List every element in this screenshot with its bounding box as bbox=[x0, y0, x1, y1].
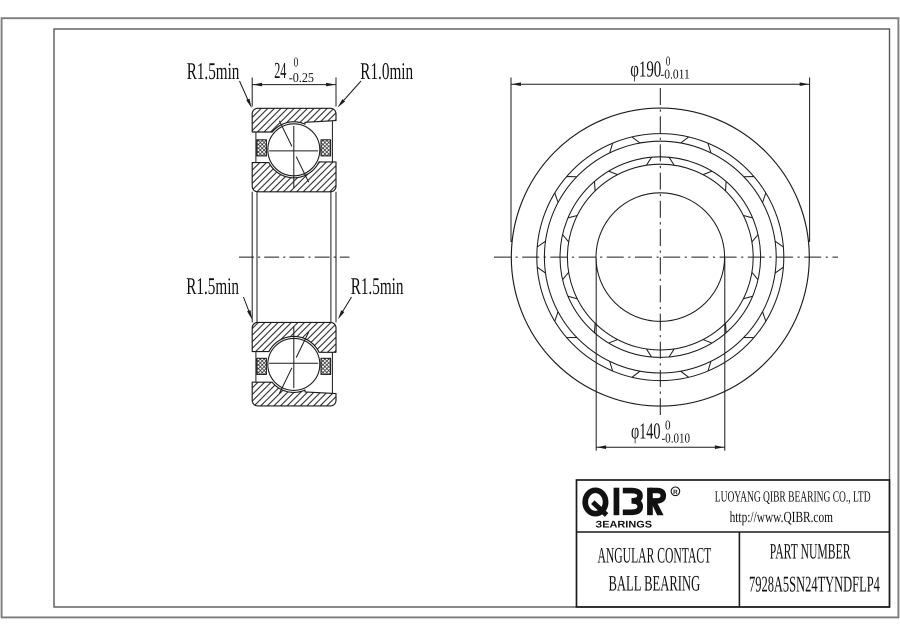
svg-text:R1.5min: R1.5min bbox=[186, 274, 239, 300]
svg-text:http://www.QIBR.com: http://www.QIBR.com bbox=[730, 509, 833, 526]
svg-text:LUOYANG QIBR BEARING CO., LTD: LUOYANG QIBR BEARING CO., LTD bbox=[715, 488, 871, 505]
svg-text:ANGULAR CONTACT: ANGULAR CONTACT bbox=[598, 542, 712, 567]
svg-text:BALL BEARING: BALL BEARING bbox=[609, 571, 701, 596]
svg-text:φ190: φ190 bbox=[630, 57, 661, 82]
svg-text:24: 24 bbox=[274, 58, 286, 83]
svg-text:R: R bbox=[673, 489, 678, 496]
svg-text:-0.011: -0.011 bbox=[660, 67, 689, 82]
svg-text:R1.5min: R1.5min bbox=[351, 274, 404, 300]
svg-text:ЗEARINGS: ЗEARINGS bbox=[595, 520, 652, 531]
svg-text:PART NUMBER: PART NUMBER bbox=[770, 539, 851, 564]
svg-text:φ140: φ140 bbox=[631, 419, 661, 444]
svg-text:7928A5SN24TYNDFLP4: 7928A5SN24TYNDFLP4 bbox=[749, 572, 880, 597]
svg-text:-0.25: -0.25 bbox=[289, 70, 315, 85]
svg-text:0: 0 bbox=[294, 54, 299, 69]
svg-text:-0.010: -0.010 bbox=[662, 431, 691, 446]
svg-text:R1.5min: R1.5min bbox=[187, 59, 240, 85]
svg-text:R1.0min: R1.0min bbox=[360, 59, 413, 85]
